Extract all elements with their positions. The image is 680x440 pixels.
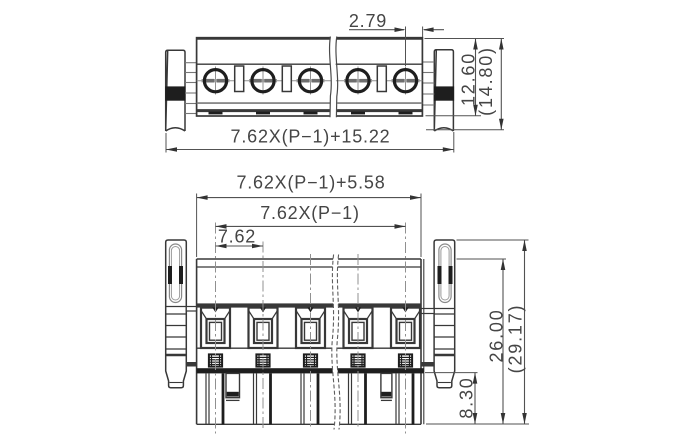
svg-text:(29.17): (29.17) (505, 304, 525, 374)
svg-text:8.30: 8.30 (457, 376, 477, 418)
svg-text:(14.80): (14.80) (476, 46, 496, 116)
svg-text:26.00: 26.00 (486, 308, 506, 362)
svg-text:7.62X(P−1): 7.62X(P−1) (260, 203, 360, 223)
svg-text:7.62X(P−1)+5.58: 7.62X(P−1)+5.58 (236, 173, 385, 193)
svg-text:7.62X(P−1)+15.22: 7.62X(P−1)+15.22 (231, 127, 391, 147)
svg-text:2.79: 2.79 (349, 11, 387, 31)
svg-text:7.62: 7.62 (218, 227, 256, 247)
